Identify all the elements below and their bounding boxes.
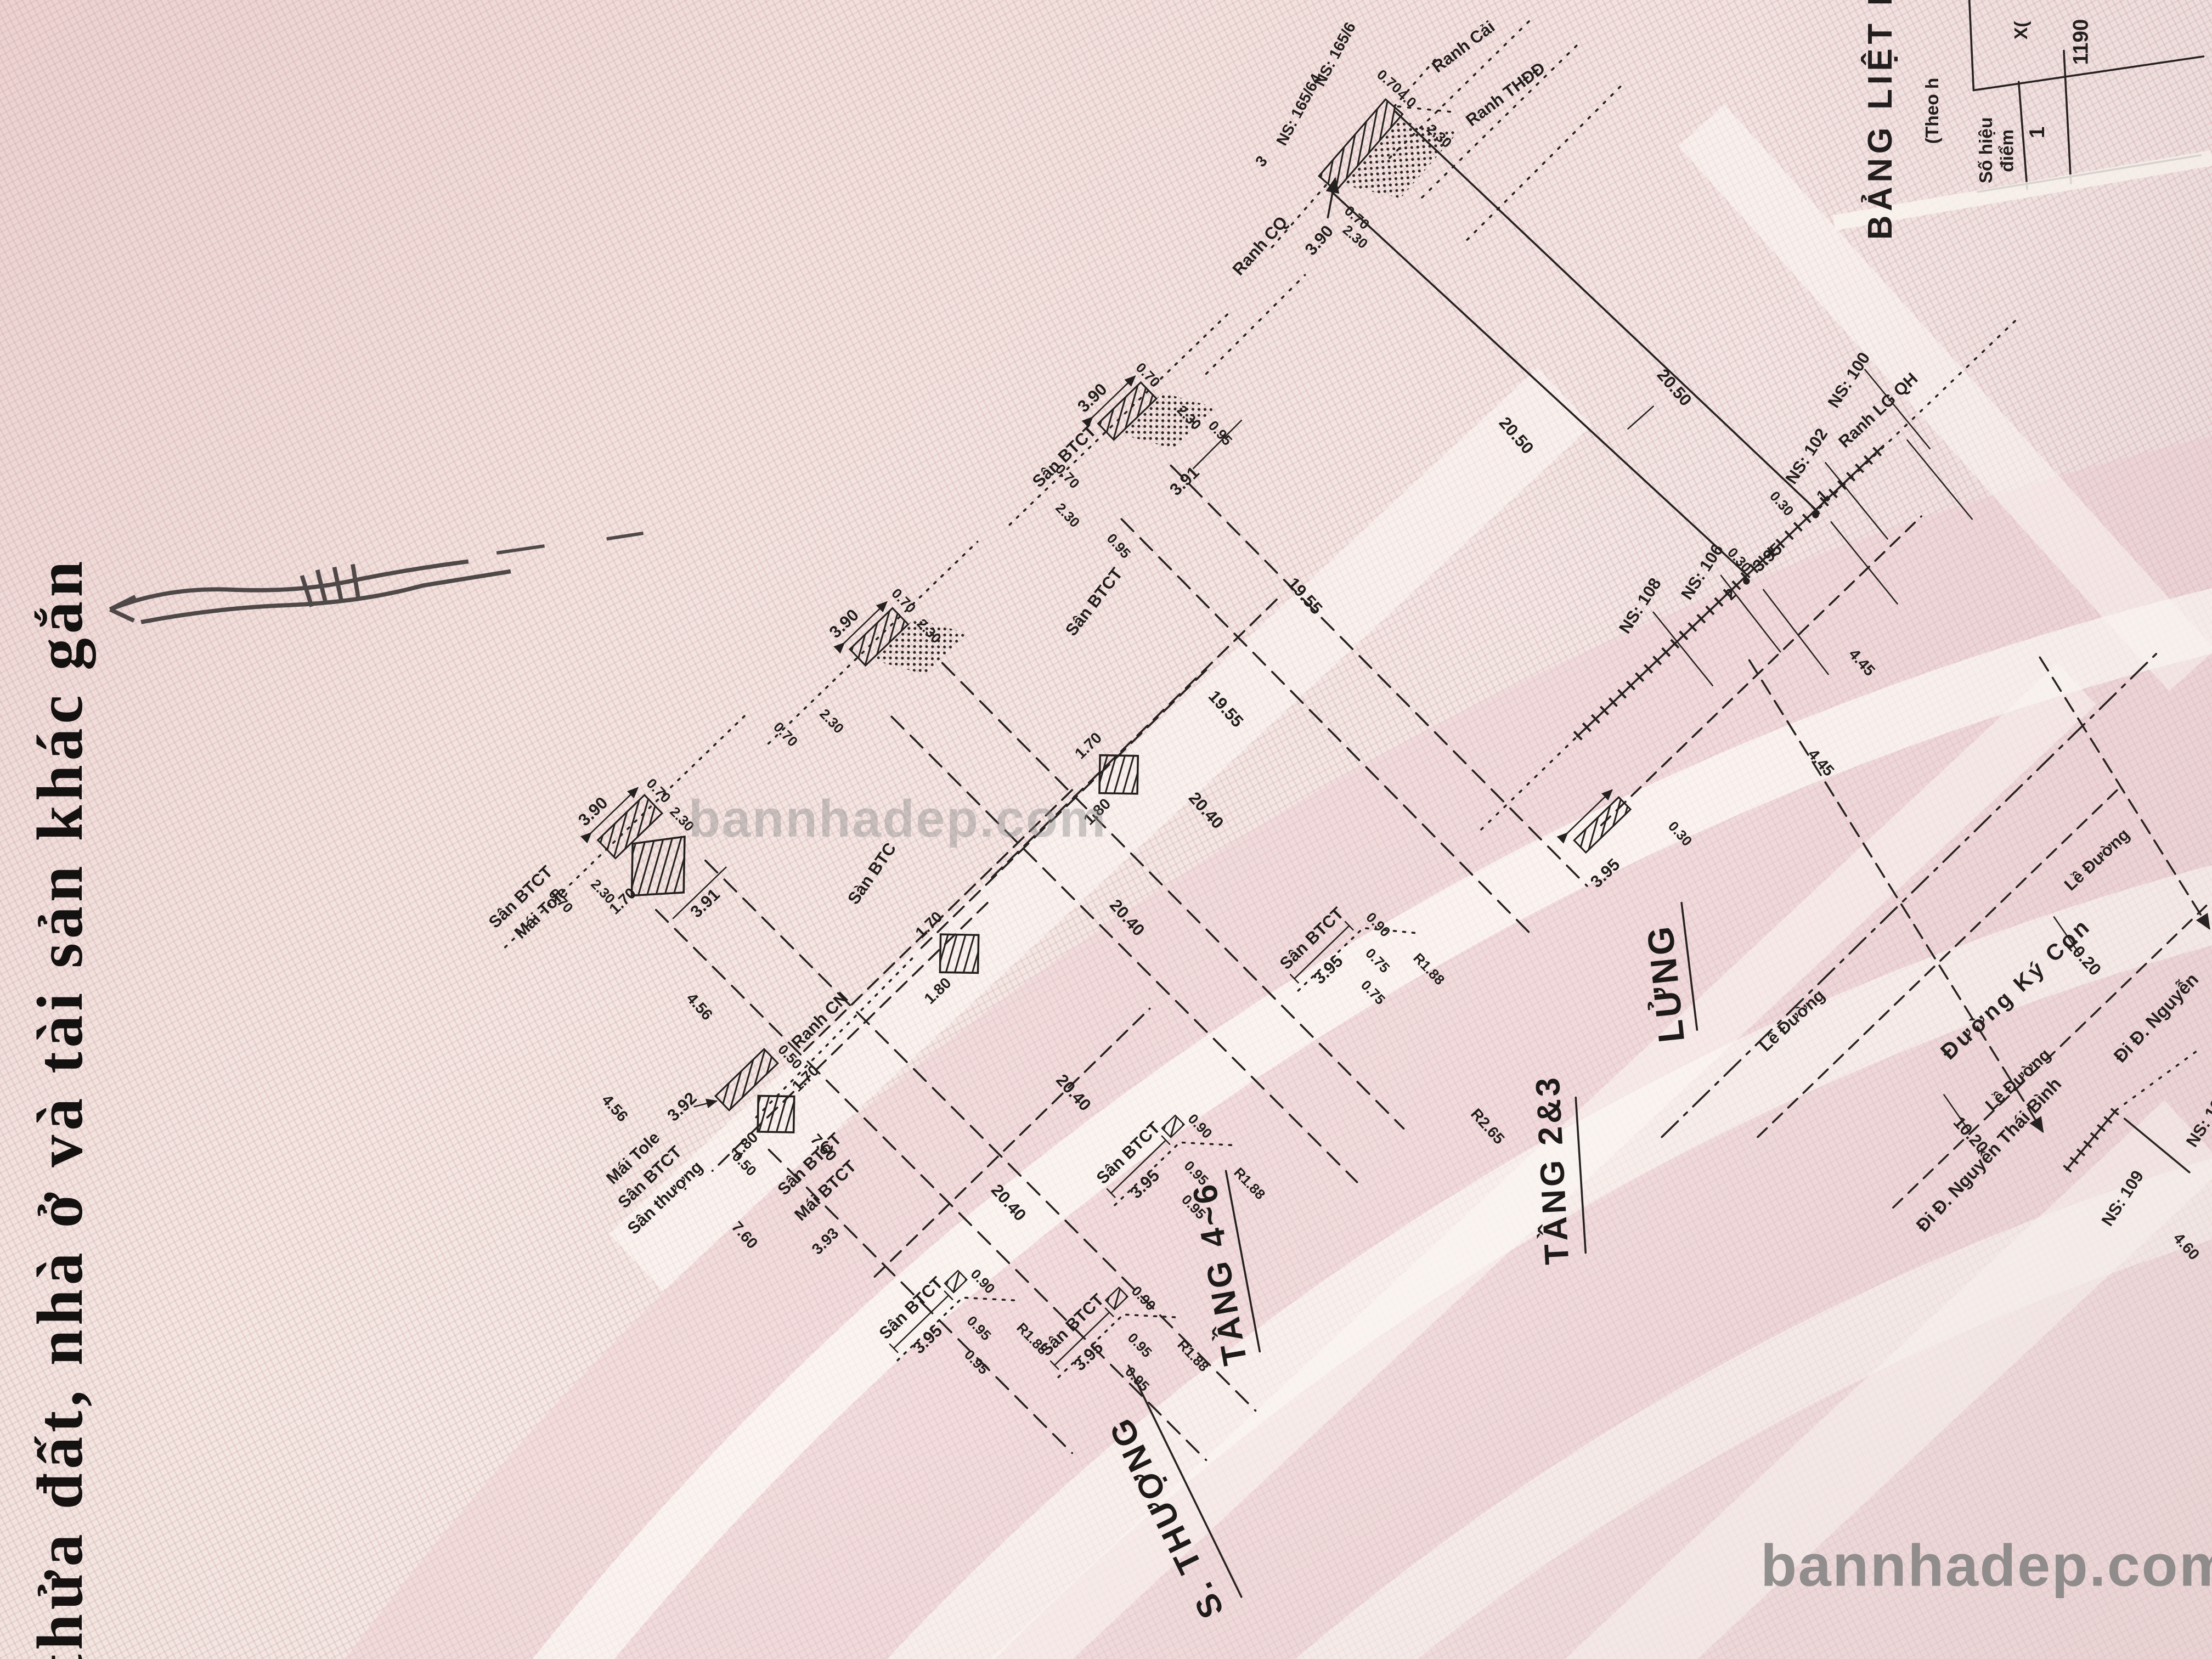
- photographed-document: BẢNG LIỆT KÊ (Theo h Số hiệu điểm X( 1 1…: [0, 0, 2212, 1659]
- photo-vignette: [0, 0, 2212, 1659]
